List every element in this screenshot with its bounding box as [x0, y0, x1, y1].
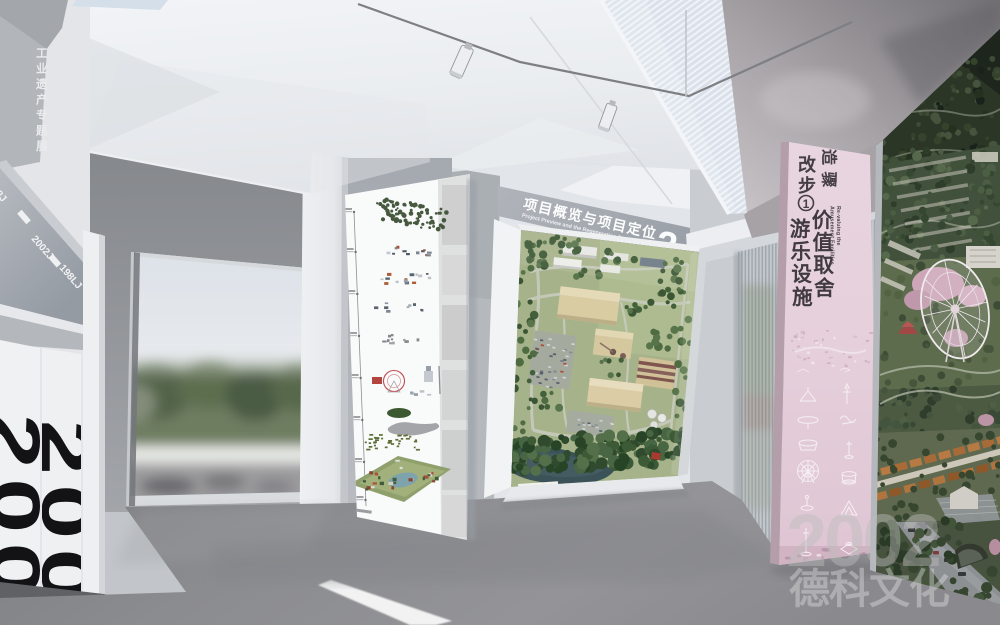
- svg-text:展: 展: [35, 140, 48, 153]
- svg-text:德科文化: 德科文化: [789, 566, 950, 612]
- svg-text:游: 游: [790, 217, 811, 241]
- svg-text:舍: 舍: [814, 276, 835, 300]
- svg-text:工: 工: [36, 47, 48, 60]
- svg-text:业: 业: [36, 62, 48, 76]
- svg-text:骤: 骤: [820, 171, 838, 187]
- svg-text:施: 施: [792, 285, 813, 309]
- svg-text:改: 改: [798, 154, 817, 175]
- svg-text:乐: 乐: [791, 241, 812, 264]
- svg-text:造: 造: [820, 149, 839, 166]
- svg-text:步: 步: [798, 175, 816, 196]
- svg-text:题: 题: [36, 125, 48, 138]
- svg-text:Amusement Facilities: Amusement Facilities: [829, 206, 835, 265]
- svg-text:设: 设: [791, 263, 812, 286]
- svg-text:Re-valuing the: Re-valuing the: [835, 206, 841, 246]
- svg-text:专: 专: [36, 108, 48, 122]
- svg-text:遗: 遗: [35, 77, 48, 91]
- svg-text:1: 1: [803, 197, 810, 211]
- svg-text:产: 产: [36, 93, 48, 107]
